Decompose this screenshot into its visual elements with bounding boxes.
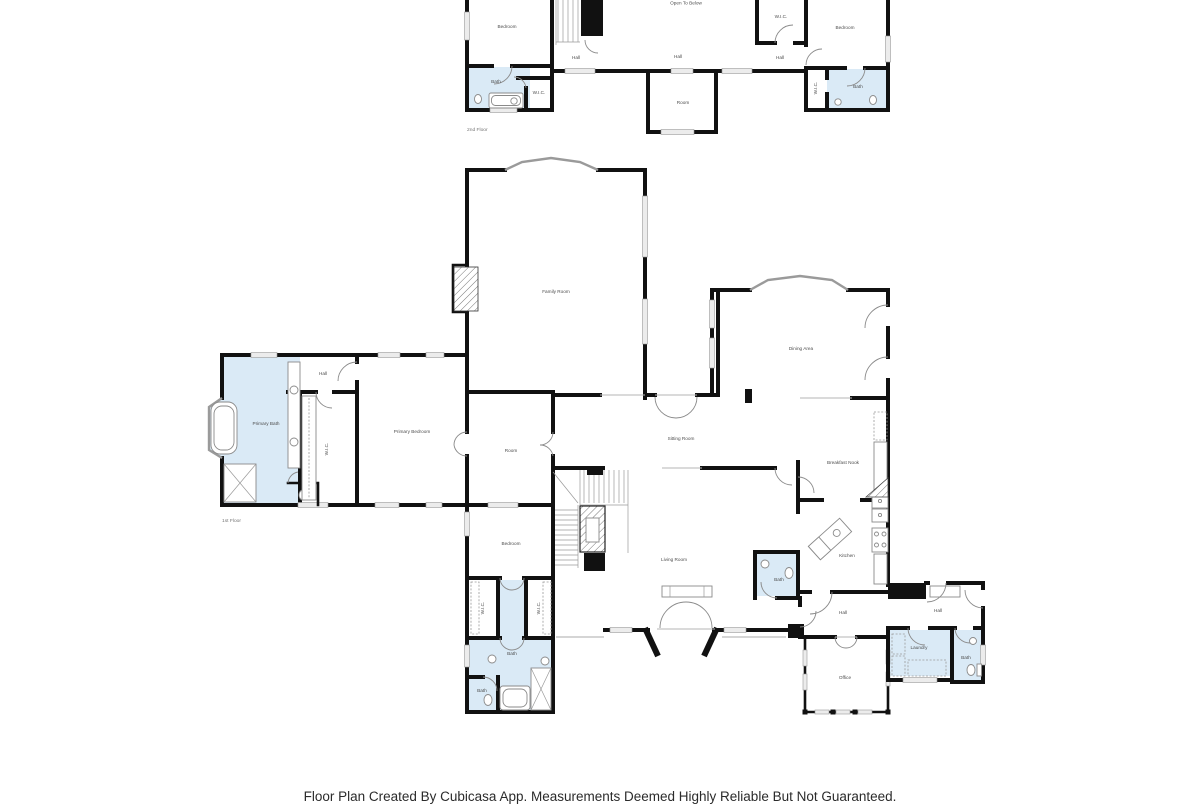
wall-stub — [584, 553, 605, 571]
entry-jamb — [645, 628, 658, 656]
door-arc — [965, 590, 983, 608]
first-floor-plan: Family Room Dining Area Hall Primary Bat… — [209, 158, 986, 715]
label-bath-powder: Bath — [774, 577, 784, 582]
bath-corridor-area — [498, 580, 526, 640]
label-kitchen: Kitchen — [839, 553, 855, 558]
window — [378, 353, 400, 358]
fridge — [874, 412, 887, 440]
knob — [878, 513, 881, 516]
walls — [467, 0, 888, 132]
label-hall-center: Hall — [674, 54, 682, 59]
door-arc — [798, 477, 814, 493]
window — [710, 338, 715, 368]
closet-dashes — [471, 582, 479, 634]
door-arc — [775, 468, 792, 485]
label-wic-left: W.I.C. — [480, 602, 485, 615]
burner — [882, 532, 886, 536]
door-arc — [338, 362, 357, 381]
toilet — [484, 695, 492, 706]
fireplace — [454, 267, 478, 311]
door-arc — [865, 305, 888, 328]
floor-plan-canvas: Open To Below Bedroom Hall Hall Hall W.I… — [0, 0, 1200, 800]
toilet-tank — [977, 664, 982, 676]
corner-post — [831, 710, 836, 715]
window — [671, 69, 693, 74]
double-door-arcs — [835, 637, 857, 648]
toilet — [870, 96, 877, 105]
label-office: Office — [839, 675, 852, 680]
label-living-room: Living Room — [661, 557, 687, 562]
sink — [488, 655, 496, 663]
label-bedroom-right: Bedroom — [835, 25, 854, 30]
label-breakfast-nook: Breakfast Nook — [827, 460, 860, 465]
burner — [882, 543, 886, 547]
label-laundry: Laundry — [911, 645, 929, 650]
walls — [712, 290, 888, 585]
floor2-title: 2nd Floor — [467, 127, 488, 133]
hall-closet — [930, 586, 960, 597]
window — [643, 196, 648, 257]
door-arc — [585, 40, 598, 53]
label-hall-right: Hall — [776, 55, 784, 60]
window — [803, 674, 807, 690]
laundry-area — [890, 630, 952, 676]
sink — [970, 638, 977, 645]
label-open-to-below: Open To Below — [670, 1, 702, 6]
window — [836, 710, 850, 714]
walls — [467, 170, 645, 398]
sink — [761, 560, 769, 568]
vanity-counter — [288, 362, 300, 468]
bay-window — [505, 158, 598, 170]
window — [375, 503, 399, 508]
knob — [878, 499, 881, 502]
toilet — [475, 95, 482, 104]
label-hall-kitchen: Hall — [839, 610, 847, 615]
sink — [511, 98, 517, 104]
stair-treads — [556, 0, 580, 45]
stove — [872, 528, 888, 552]
window — [643, 299, 648, 344]
window — [488, 503, 518, 508]
window — [298, 503, 328, 508]
label-dining-area: Dining Area — [789, 346, 814, 351]
counter — [874, 554, 887, 584]
window — [724, 628, 746, 633]
label-hall-right: Hall — [934, 608, 942, 613]
label-bath-left: Bath — [491, 79, 501, 84]
label-wic-right: W.I.C. — [813, 82, 818, 95]
toilet — [967, 665, 975, 676]
window — [803, 650, 807, 666]
window — [858, 710, 872, 714]
window — [981, 645, 986, 665]
label-bath-right: Bath — [961, 655, 971, 660]
window — [815, 710, 829, 714]
burner — [875, 543, 879, 547]
footer-disclaimer: Floor Plan Created By Cubicasa App. Meas… — [0, 789, 1200, 804]
label-family-room: Family Room — [542, 289, 570, 294]
window — [565, 69, 595, 74]
window — [610, 628, 632, 633]
label-sitting-room: Sitting Room — [668, 436, 695, 441]
bathtub-inner — [503, 689, 527, 707]
window — [251, 353, 277, 358]
floorplan-page: { "footer": { "text": "Floor Plan Create… — [0, 0, 1200, 800]
double-door-arcs — [655, 397, 697, 418]
label-bath-small: Bath — [477, 688, 487, 693]
door-arc — [806, 49, 822, 65]
stair-hatch-inner — [586, 518, 599, 542]
floor1-title: 1st Floor — [222, 518, 241, 524]
door-arc — [316, 392, 332, 408]
label-wic-top: W.I.C. — [775, 14, 788, 19]
burner — [875, 532, 879, 536]
label-hall-top: Hall — [319, 371, 327, 376]
wall-stub — [745, 389, 752, 403]
door-arc — [810, 592, 832, 614]
label-primary-bath: Primary Bath — [252, 421, 279, 426]
label-hall-left: Hall — [572, 55, 580, 60]
bay-window — [750, 276, 848, 290]
primary-bathtub-inner — [214, 406, 234, 450]
window — [710, 300, 715, 328]
door-arc — [775, 25, 793, 43]
window — [465, 512, 470, 536]
chimney-block — [888, 583, 926, 599]
window — [886, 36, 891, 62]
label-wic-left: W.I.C. — [533, 90, 546, 95]
console-table — [662, 586, 712, 597]
label-primary-bedroom: Primary Bedroom — [394, 429, 431, 434]
label-bedroom-left: Bedroom — [497, 24, 516, 29]
sink — [541, 657, 549, 665]
label-wic-right: W.I.C. — [536, 602, 541, 615]
label-bath-main: Bath — [507, 651, 517, 656]
corner-post — [853, 710, 858, 715]
window — [661, 130, 694, 135]
french-door-arcs — [660, 602, 712, 628]
window — [465, 12, 470, 40]
label-room: Room — [505, 448, 518, 453]
label-room-center: Room — [677, 100, 690, 105]
small-bath-area — [469, 679, 498, 710]
corner-post — [803, 710, 808, 715]
entry-jamb — [704, 628, 717, 656]
window — [426, 353, 444, 358]
sink — [290, 438, 298, 446]
closet-dashes — [543, 582, 551, 634]
window — [722, 69, 752, 74]
sink — [290, 386, 298, 394]
toilet — [785, 568, 793, 579]
door-arc — [865, 357, 888, 380]
sink — [835, 99, 841, 105]
second-floor-plan: Open To Below Bedroom Hall Hall Hall W.I… — [465, 0, 891, 135]
corner-post — [886, 710, 891, 715]
label-bath-right: Bath — [853, 84, 863, 89]
window — [465, 645, 470, 667]
stair-block — [581, 0, 603, 36]
window — [903, 678, 937, 683]
label-bedroom: Bedroom — [501, 541, 520, 546]
walls — [553, 290, 718, 395]
window — [426, 503, 442, 508]
label-wic-primary: W.I.C. — [324, 443, 329, 456]
french-door-arcs — [454, 432, 553, 456]
